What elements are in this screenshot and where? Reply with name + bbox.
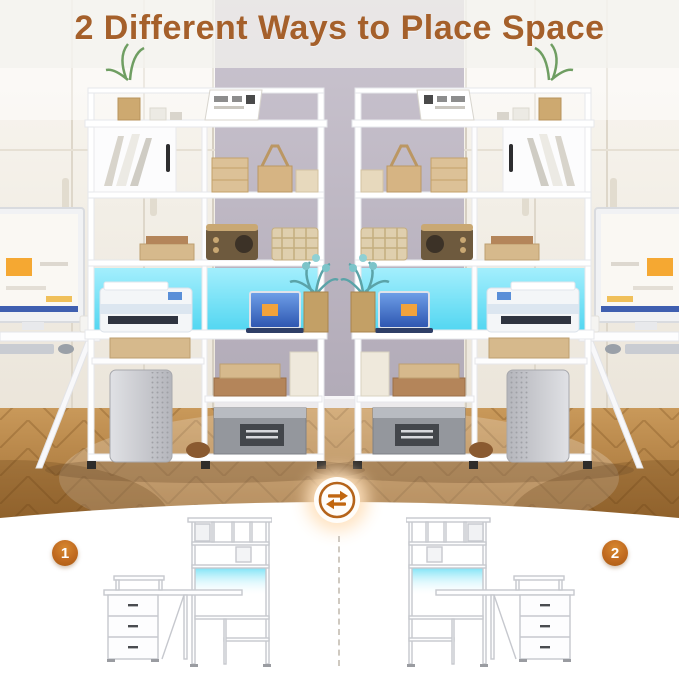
dashed-divider — [338, 536, 340, 666]
swap-arrows-icon — [314, 477, 360, 523]
layout-diagram-2 — [406, 516, 578, 668]
product-infographic: 2 Different Ways to Place Space 1 2 — [0, 0, 679, 676]
room-photo-illustration — [0, 0, 679, 530]
page-title: 2 Different Ways to Place Space — [0, 9, 679, 48]
layout-diagram-1 — [100, 516, 272, 668]
layout-number-badge-1: 1 — [52, 540, 78, 566]
layout-number-badge-2: 2 — [602, 540, 628, 566]
room-photo — [0, 0, 679, 530]
